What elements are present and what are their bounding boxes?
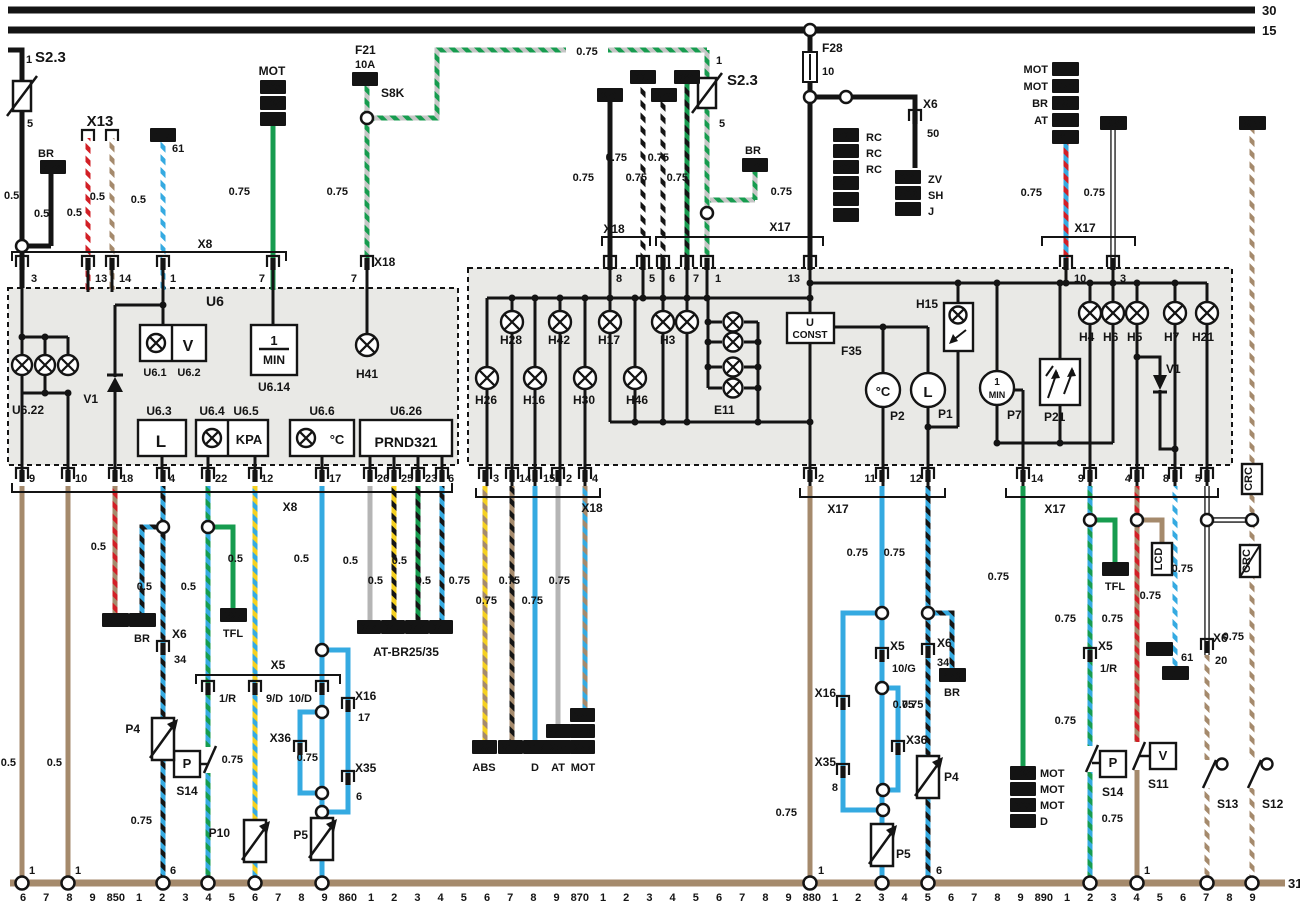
label: 0.5 <box>181 581 196 593</box>
label: 1 <box>26 54 32 66</box>
label: MOT <box>1040 784 1065 796</box>
wire-code-label: 760 <box>837 163 855 175</box>
label: 7 <box>693 273 699 285</box>
junction-dot <box>160 302 167 309</box>
rail-tick-label: 6 <box>1180 892 1186 904</box>
connector-pin-plug <box>807 258 812 270</box>
label: PRND321 <box>374 434 437 450</box>
connector-pin-plug <box>270 258 275 270</box>
label: 1 <box>270 333 277 348</box>
wire <box>1090 520 1115 562</box>
label: 0.5 <box>67 207 82 219</box>
label: J <box>928 206 934 218</box>
connector-pin-plug <box>160 643 165 655</box>
ground-junction <box>1246 877 1259 890</box>
label: BR <box>38 148 54 160</box>
label: 34 <box>174 654 187 666</box>
label: U6.2 <box>177 367 200 379</box>
label: 9 <box>1078 473 1084 485</box>
rail-tick-label: 3 <box>414 892 420 904</box>
connector-pin-plug <box>607 258 612 270</box>
label: 14 <box>1031 473 1044 485</box>
junction-dot <box>532 295 539 302</box>
connector-pin-plug <box>640 258 645 270</box>
wiring-diagram-page: 4744749631362701153153702253792807217467… <box>0 0 1300 905</box>
junction <box>876 607 888 619</box>
rail-tick-label: 6 <box>252 892 258 904</box>
ground-junction <box>16 877 29 890</box>
label: ZV <box>928 174 943 186</box>
junction-dot <box>1057 280 1064 287</box>
label: RC <box>866 164 882 176</box>
label: 0.75 <box>626 172 647 184</box>
label: MOT <box>1040 800 1065 812</box>
label: 0.75 <box>1055 715 1076 727</box>
label: MOT <box>259 64 286 78</box>
label: P5 <box>896 847 911 861</box>
label: 6 <box>448 473 454 485</box>
label: X6 <box>172 627 187 641</box>
rail-tick-label: 2 <box>391 892 397 904</box>
rail-tick-label: 8 <box>762 892 768 904</box>
connector-pin-plug <box>65 470 70 482</box>
label: 2 <box>818 473 824 485</box>
junction <box>804 24 816 36</box>
label: 0.75 <box>499 575 520 587</box>
connector-pin-plug <box>205 683 210 695</box>
connector-pin-plug <box>160 470 165 482</box>
label: H17 <box>598 333 620 347</box>
label: X18 <box>603 222 625 236</box>
label: L <box>156 432 166 451</box>
rail-tick-label: 890 <box>1035 892 1053 904</box>
ground-junction <box>157 877 170 890</box>
label: X17 <box>1044 502 1066 516</box>
label: P4 <box>125 722 140 736</box>
label: 0.5 <box>90 191 105 203</box>
wire-code-label: 963 <box>1014 801 1032 813</box>
label: 9 <box>29 473 35 485</box>
junction-dot <box>1110 280 1117 287</box>
connector-pin-plug <box>1020 470 1025 482</box>
rail-tick-label: 7 <box>507 892 513 904</box>
label: U6.5 <box>233 404 259 418</box>
junction <box>316 806 328 818</box>
label: U6.1 <box>143 367 166 379</box>
label: P1 <box>938 407 953 421</box>
label: X16 <box>355 689 377 703</box>
label: 14 <box>119 273 132 285</box>
rail-tick-label: 8 <box>994 892 1000 904</box>
rail-tick-label: 7 <box>971 892 977 904</box>
connector-pin-plug <box>1087 650 1092 662</box>
connector-pin-plug <box>109 258 114 270</box>
label: 0.75 <box>1172 563 1193 575</box>
label: 10 <box>822 66 834 78</box>
junction-dot <box>19 334 26 341</box>
label: S14 <box>176 784 198 798</box>
junction-dot <box>640 295 647 302</box>
junction <box>316 706 328 718</box>
junction-dot <box>1063 280 1070 287</box>
label: X5 <box>890 639 905 653</box>
label: S11 <box>1148 777 1169 791</box>
label: S12 <box>1262 797 1284 811</box>
label: U6.22 <box>12 403 44 417</box>
wire-code-label: 315 <box>356 75 374 87</box>
rail-tick-label: 870 <box>571 892 589 904</box>
wire-code-label: 250 <box>549 743 567 755</box>
label: 0.5 <box>1 757 16 769</box>
wire-code-label: 476 <box>943 671 961 683</box>
rail-tick-label: 8 <box>530 892 536 904</box>
wire-code-label: 370 <box>601 91 619 103</box>
label: S13 <box>1217 797 1239 811</box>
label: 0.75 <box>847 547 868 559</box>
connector-bracket <box>1042 237 1135 246</box>
rail-tick-label: 3 <box>646 892 652 904</box>
connector-pin-plug <box>555 470 560 482</box>
label: 0.75 <box>1140 590 1161 602</box>
label: 1 <box>715 273 721 285</box>
label: MIN <box>263 353 285 367</box>
junction <box>876 682 888 694</box>
label: 1 <box>170 273 176 285</box>
wire-code-label: 474 <box>44 163 63 175</box>
junction-dot <box>557 295 564 302</box>
label: X6 <box>923 97 938 111</box>
wire-code-label: 584 <box>475 743 494 755</box>
rail-tick-label: 9 <box>322 892 328 904</box>
connector-bracket <box>476 488 600 497</box>
junction <box>1131 514 1143 526</box>
label: 4 <box>1125 473 1132 485</box>
junction-dot <box>65 390 72 397</box>
label: CRC <box>1243 467 1255 491</box>
rail-tick-label: 4 <box>438 892 445 904</box>
label: 6 <box>170 865 176 877</box>
label: 9/D <box>266 693 283 705</box>
label: 17 <box>358 712 370 724</box>
label: S8K <box>381 86 405 100</box>
connector-pin-plug <box>925 470 930 482</box>
label: CRC <box>1241 549 1253 573</box>
label: P <box>1109 755 1118 770</box>
junction-dot <box>807 280 814 287</box>
label: H30 <box>573 393 595 407</box>
label: MOT <box>571 762 596 774</box>
ground-junction <box>1084 877 1097 890</box>
label: 10 <box>1074 273 1086 285</box>
label: CONST <box>793 330 828 341</box>
wire-code-label: 327 <box>224 611 242 623</box>
label: 4 <box>592 473 599 485</box>
label: 3 <box>1120 273 1126 285</box>
connector-pin-plug <box>684 258 689 270</box>
ground-junction <box>922 877 935 890</box>
connector-pin-plug <box>879 650 884 662</box>
wire <box>8 50 22 84</box>
label: V <box>183 338 194 355</box>
rail-tick-label: 860 <box>339 892 357 904</box>
rail-tick-label: 7 <box>43 892 49 904</box>
label: 25 <box>401 473 413 485</box>
wire-code-label: 895 <box>106 616 124 628</box>
rail-tick-label: 4 <box>902 892 909 904</box>
connector-pin-plug <box>160 258 165 270</box>
label: 0.75 <box>776 807 797 819</box>
connector-pin-plug <box>391 470 396 482</box>
junction <box>1246 514 1258 526</box>
connector-bracket <box>196 675 340 684</box>
label: P7 <box>1007 408 1022 422</box>
junction <box>840 91 852 103</box>
rail-tick-label: 2 <box>623 892 629 904</box>
label: 6 <box>669 273 675 285</box>
connector-pin-plug <box>345 773 350 785</box>
label: 22 <box>215 473 227 485</box>
label: 8 <box>1163 473 1169 485</box>
wire-code-label: 442 <box>1056 116 1074 128</box>
junction-dot <box>632 295 639 302</box>
wire-code-label: 480 <box>1056 99 1074 111</box>
label: X8 <box>198 237 213 251</box>
label: BR <box>944 687 960 699</box>
label: 0.75 <box>667 172 688 184</box>
wire-code-label: 800 <box>1243 119 1261 131</box>
connector-pin-plug <box>704 258 709 270</box>
label: 4 <box>169 473 176 485</box>
wire-code-label: 225 <box>634 73 652 85</box>
wire-code-label: 273 <box>1056 82 1074 94</box>
label: X36 <box>906 733 928 747</box>
junction-dot <box>705 364 712 371</box>
wire <box>373 50 707 118</box>
label: H16 <box>523 393 545 407</box>
rail-tick-label: 2 <box>855 892 861 904</box>
connector-bracket <box>1006 488 1218 497</box>
wire-code-label: 272 <box>573 743 591 755</box>
rail-tick-label: 2 <box>159 892 165 904</box>
connector-bracket <box>12 252 286 261</box>
label: U6.26 <box>390 404 422 418</box>
connector-pin-plug <box>895 743 900 755</box>
label: 0.5 <box>228 553 243 565</box>
label: V1 <box>83 392 98 406</box>
label: S2.3 <box>727 72 758 89</box>
wire-code-label: 244 <box>360 623 379 635</box>
junction <box>877 784 889 796</box>
label: TFL <box>223 628 243 640</box>
label: 0.75 <box>1102 813 1123 825</box>
connector-bracket <box>656 237 823 246</box>
wire-code-label: 336 <box>1104 119 1122 131</box>
label: 1/R <box>219 693 236 705</box>
label: 7 <box>351 273 357 285</box>
label: P10 <box>209 826 231 840</box>
rail-tick-label: 3 <box>1110 892 1116 904</box>
junction-dot <box>705 339 712 346</box>
label: V <box>1159 748 1168 763</box>
label: U6.14 <box>258 380 290 394</box>
connector-pin-plug <box>1134 470 1139 482</box>
label: 50 <box>927 128 939 140</box>
rail-tick-label: 7 <box>275 892 281 904</box>
label: 0.75 <box>1102 613 1123 625</box>
label: 13 <box>95 273 107 285</box>
junction-dot <box>1134 354 1141 361</box>
label: BR <box>745 145 761 157</box>
label: P21 <box>1044 410 1066 424</box>
wire-code-label: 115 <box>154 131 172 143</box>
junction-dot <box>955 280 962 287</box>
label: X16 <box>815 686 837 700</box>
connector-pin-plug <box>509 470 514 482</box>
rail-tick-label: 4 <box>1134 892 1141 904</box>
label: 14 <box>519 473 532 485</box>
label: 5 <box>649 273 655 285</box>
label: H3 <box>660 333 676 347</box>
junction-dot <box>994 440 1001 447</box>
label: MIN <box>989 390 1006 400</box>
wire-code-label: 600 <box>899 173 917 185</box>
rail-tick-label: 9 <box>1250 892 1256 904</box>
label: H41 <box>356 367 378 381</box>
label: U6.3 <box>146 404 172 418</box>
label: 18 <box>121 473 133 485</box>
label: 10A <box>355 59 375 71</box>
label: F35 <box>841 344 862 358</box>
wire-code-label: 270 <box>1014 785 1032 797</box>
label: MOT <box>1024 64 1049 76</box>
label: P5 <box>293 828 308 842</box>
junction-dot <box>42 334 49 341</box>
label: 8 <box>832 782 838 794</box>
label: KPA <box>236 432 263 447</box>
connector-pin-plug <box>879 470 884 482</box>
ground-junction <box>1131 877 1144 890</box>
rail-tick-label: 7 <box>1203 892 1209 904</box>
connector-pin-plug <box>205 470 210 482</box>
connector-pin-plug <box>319 470 324 482</box>
label: 1 <box>1144 865 1150 877</box>
wire-code-label: 562 <box>899 189 917 201</box>
wire <box>208 527 233 608</box>
junction-dot <box>755 364 762 371</box>
connector-pin-plug <box>1087 470 1092 482</box>
wire-code-label: 410 <box>837 211 855 223</box>
component-box <box>1040 359 1080 405</box>
rail-tick-label: 5 <box>925 892 931 904</box>
label: X17 <box>827 502 849 516</box>
rail-tick-label: 8 <box>66 892 72 904</box>
label: H6 <box>1103 330 1119 344</box>
junction-dot <box>807 295 814 302</box>
label: SH <box>928 190 943 202</box>
label: L <box>923 384 932 401</box>
label: AT <box>1034 115 1048 127</box>
junction <box>202 521 214 533</box>
label: 7 <box>259 273 265 285</box>
label: 0.75 <box>1021 187 1042 199</box>
junction <box>157 521 169 533</box>
wire-code-label: 115 <box>1167 669 1185 681</box>
rail-tick-label: 9 <box>786 892 792 904</box>
connector-pin-plug <box>415 470 420 482</box>
label: 12 <box>910 473 922 485</box>
connector-pin-plug <box>482 470 487 482</box>
label: BR <box>134 633 150 645</box>
wire-code-label: 136 <box>264 99 282 111</box>
junction-dot <box>704 295 711 302</box>
ground-junction <box>804 877 817 890</box>
label: 0.75 <box>222 754 243 766</box>
wire-code-label: 201 <box>899 205 917 217</box>
label: D <box>531 762 539 774</box>
label: 1 <box>75 865 81 877</box>
label: 5 <box>719 118 725 130</box>
junction-dot <box>632 419 639 426</box>
switch-icon <box>1086 745 1098 772</box>
label: 0.75 <box>131 815 152 827</box>
rail-tick-label: 6 <box>716 892 722 904</box>
wire-code-label: 721 <box>837 131 855 143</box>
label: 0.5 <box>34 208 49 220</box>
label: U <box>806 317 814 329</box>
junction-dot <box>660 419 667 426</box>
rail-tick-label: 5 <box>229 892 235 904</box>
wire-code-label: 116 <box>1014 817 1032 829</box>
rail-tick-label: 3 <box>878 892 884 904</box>
rail-tick-label: 5 <box>461 892 467 904</box>
label: 1 <box>994 377 1000 388</box>
label: H21 <box>1192 330 1214 344</box>
label: X17 <box>1074 221 1096 235</box>
connector-pin-plug <box>1204 641 1209 653</box>
connector-pin-plug <box>19 470 24 482</box>
wire-code-label: 474 <box>746 161 765 173</box>
ground-junction <box>249 877 262 890</box>
connector-pin-plug <box>1063 258 1068 270</box>
rail-tick-label: 9 <box>90 892 96 904</box>
wire-code-label: 136 <box>1014 769 1032 781</box>
label: 0.75 <box>476 595 497 607</box>
label: 15 <box>1262 23 1276 38</box>
diagram-layers: 4744749631362701153153702253792807217467… <box>1 3 1300 904</box>
label: X18 <box>374 255 396 269</box>
label: 61 <box>172 143 184 155</box>
switch-contact-icon <box>1217 759 1228 770</box>
label: 26 <box>377 473 389 485</box>
label: 0.5 <box>368 575 383 587</box>
wire-code-label: 441 <box>549 727 567 739</box>
label: H15 <box>916 297 938 311</box>
label: 1 <box>818 865 824 877</box>
connector-pin-plug <box>582 470 587 482</box>
label: 8 <box>616 273 622 285</box>
label: 0.75 <box>893 699 914 711</box>
rail-tick-label: 9 <box>1018 892 1024 904</box>
label: X5 <box>271 658 286 672</box>
junction-dot <box>42 390 49 397</box>
label: °C <box>330 432 345 447</box>
label: 5 <box>27 118 33 130</box>
label: 0.75 <box>449 575 470 587</box>
switch-contact-icon <box>1262 759 1273 770</box>
label: 1 <box>29 865 35 877</box>
label: 0.5 <box>294 553 309 565</box>
junction-dot <box>582 295 589 302</box>
